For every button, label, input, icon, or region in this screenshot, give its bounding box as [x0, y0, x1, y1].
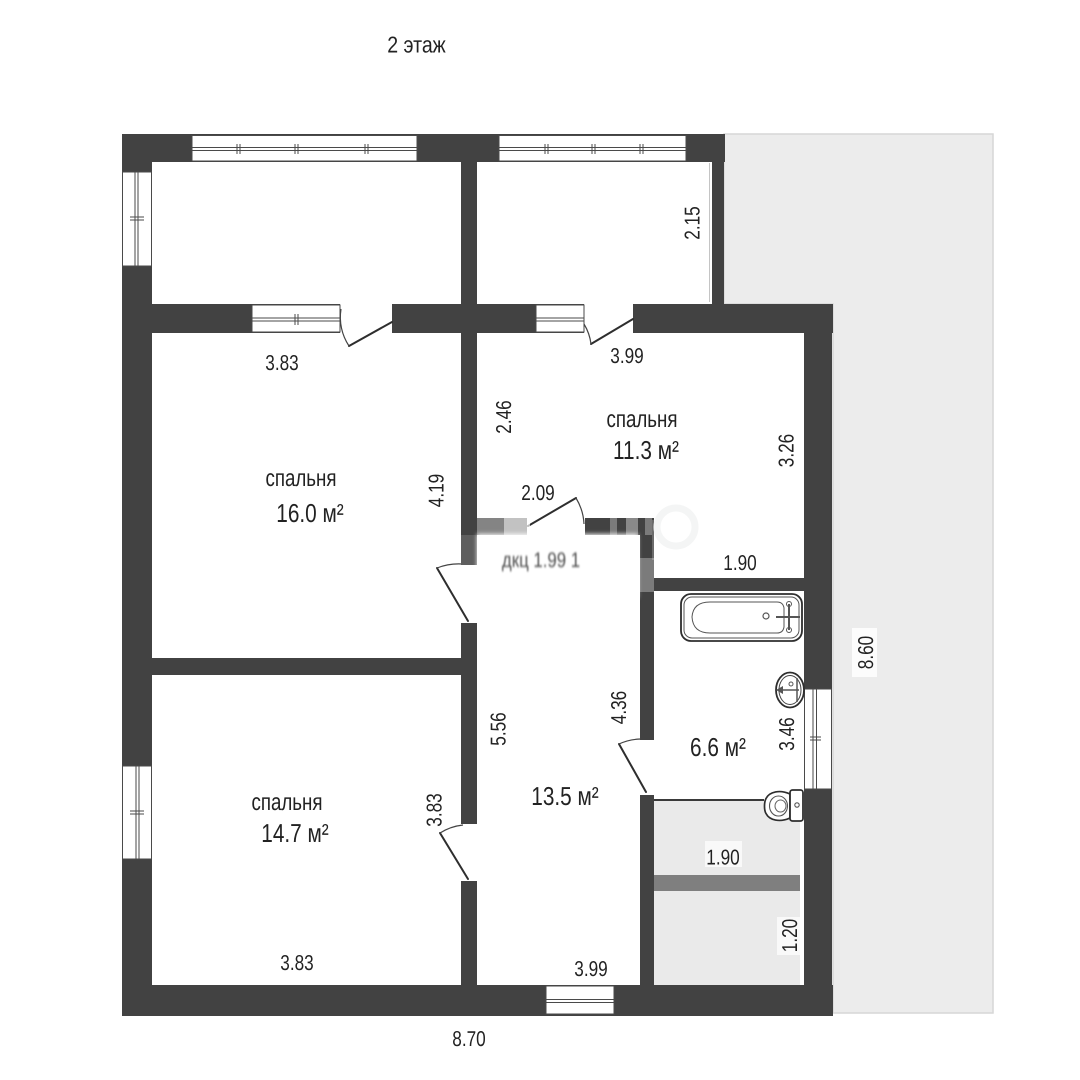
- svg-text:2 этаж: 2 этаж: [387, 32, 446, 58]
- svg-text:спальня: спальня: [251, 789, 322, 816]
- svg-text:1.90: 1.90: [723, 551, 757, 575]
- svg-text:3.99: 3.99: [574, 957, 607, 981]
- svg-text:2.15: 2.15: [681, 206, 705, 240]
- svg-text:14.7 м²: 14.7 м²: [261, 818, 329, 848]
- svg-text:спальня: спальня: [265, 465, 336, 492]
- svg-text:дкц 1.99 1: дкц 1.99 1: [502, 549, 580, 572]
- svg-text:3.46: 3.46: [775, 717, 799, 751]
- svg-text:3.26: 3.26: [775, 434, 799, 468]
- svg-text:2.09: 2.09: [521, 481, 554, 505]
- svg-text:8.60: 8.60: [854, 636, 878, 670]
- svg-text:1.20: 1.20: [778, 919, 802, 953]
- svg-text:спальня: спальня: [606, 406, 677, 433]
- svg-text:4.36: 4.36: [607, 691, 631, 725]
- svg-text:3.83: 3.83: [423, 793, 447, 827]
- svg-text:11.3 м²: 11.3 м²: [613, 435, 679, 465]
- svg-text:8.70: 8.70: [452, 1027, 486, 1051]
- svg-text:13.5 м²: 13.5 м²: [531, 781, 599, 811]
- svg-text:16.0 м²: 16.0 м²: [276, 498, 344, 528]
- svg-text:1.90: 1.90: [706, 846, 740, 870]
- svg-text:4.19: 4.19: [425, 474, 449, 507]
- svg-text:3.83: 3.83: [280, 951, 314, 975]
- svg-text:3.99: 3.99: [610, 344, 643, 368]
- svg-text:5.56: 5.56: [487, 712, 511, 746]
- svg-text:6.6 м²: 6.6 м²: [690, 732, 746, 762]
- svg-text:3.83: 3.83: [265, 351, 299, 375]
- svg-text:2.46: 2.46: [492, 400, 516, 434]
